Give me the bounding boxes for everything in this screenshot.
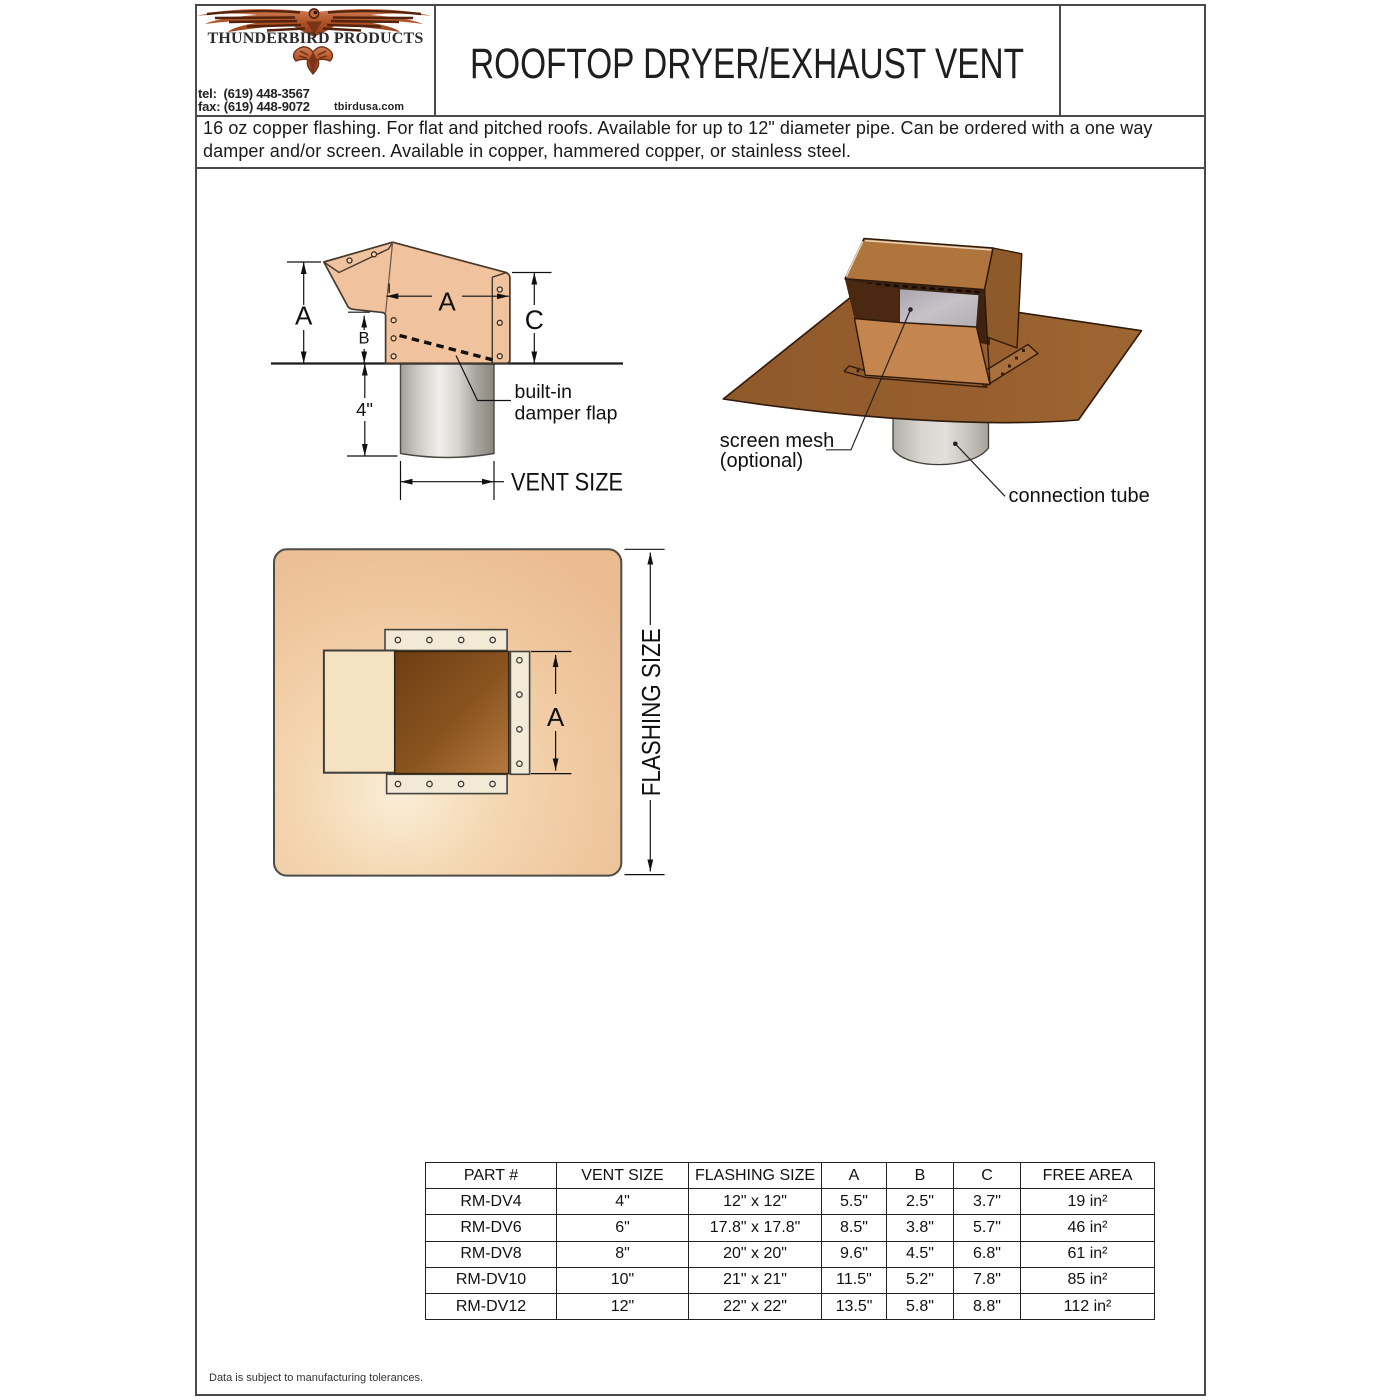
svg-text:damper flap: damper flap (515, 403, 618, 425)
svg-text:A: A (547, 702, 565, 732)
svg-text:screen mesh: screen mesh (720, 430, 835, 452)
svg-text:(optional): (optional) (720, 450, 803, 472)
svg-text:ROOFTOP DRYER/EXHAUST VENT: ROOFTOP DRYER/EXHAUST VENT (470, 40, 1024, 88)
svg-text:A: A (295, 301, 313, 331)
svg-text:connection tube: connection tube (1009, 485, 1150, 507)
svg-text:B: B (358, 330, 369, 348)
svg-text:FLASHING SIZE: FLASHING SIZE (638, 628, 666, 796)
svg-text:A: A (438, 287, 456, 317)
svg-text:VENT SIZE: VENT SIZE (511, 469, 623, 497)
svg-text:C: C (525, 305, 544, 335)
svg-text:4": 4" (356, 399, 373, 420)
svg-text:built-in: built-in (515, 381, 572, 403)
